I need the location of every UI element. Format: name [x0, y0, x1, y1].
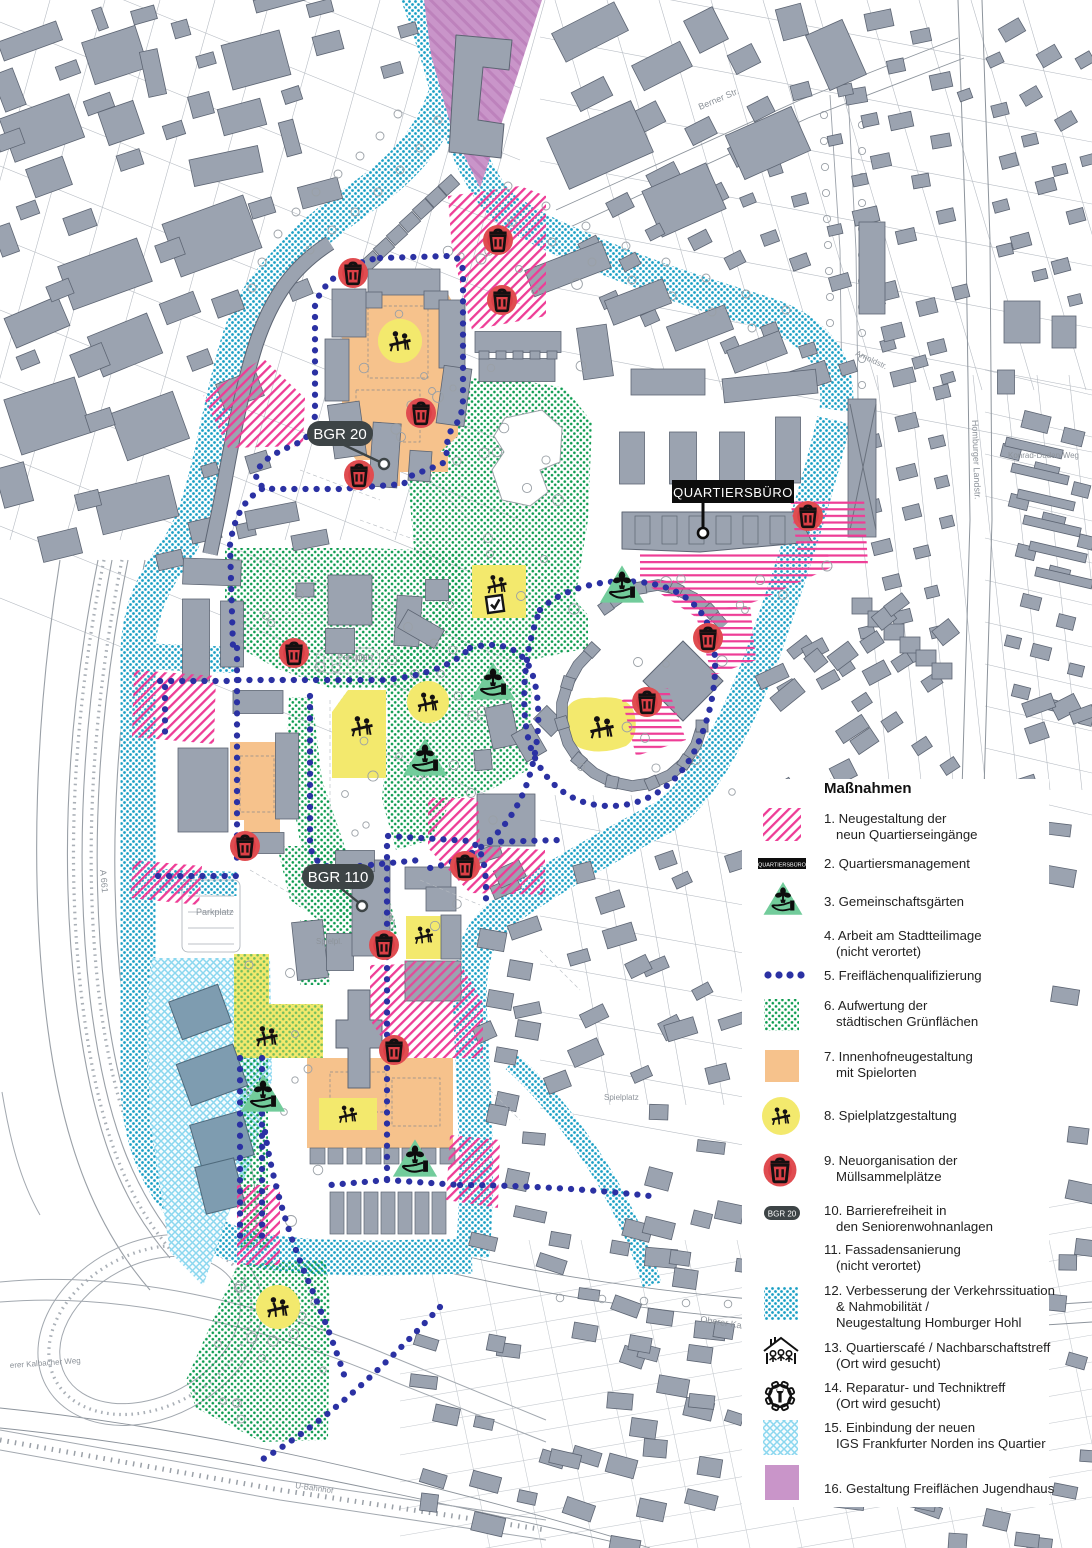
svg-text:5. Freiflächenqualifizierung: 5. Freiflächenqualifizierung: [824, 968, 982, 983]
svg-text:(nicht verortet): (nicht verortet): [836, 1258, 921, 1273]
svg-text:11. Fassadensanierung: 11. Fassadensanierung: [824, 1242, 961, 1257]
svg-text:Spielpl.: Spielpl.: [316, 937, 342, 946]
svg-text:Neugestaltung Homburger Hohl: Neugestaltung Homburger Hohl: [836, 1315, 1022, 1330]
svg-text:Spielplatz: Spielplatz: [604, 1093, 639, 1102]
svg-text:Parkplatz: Parkplatz: [337, 652, 375, 662]
svg-text:12. Verbesserung der Verkehrss: 12. Verbesserung der Verkehrssituation: [824, 1283, 1055, 1298]
svg-text:Parkplatz: Parkplatz: [196, 907, 234, 917]
svg-text:mit Spielorten: mit Spielorten: [836, 1065, 917, 1080]
svg-text:den Seniorenwohnanlagen: den Seniorenwohnanlagen: [836, 1219, 993, 1234]
svg-text:QUARTIERSBÜRO: QUARTIERSBÜRO: [673, 485, 793, 500]
svg-text:7. Innenhofneugestaltung: 7. Innenhofneugestaltung: [824, 1049, 973, 1064]
svg-text:neun Quartierseingänge: neun Quartierseingänge: [836, 827, 978, 842]
svg-text:IGS Frankfurter Norden ins Qua: IGS Frankfurter Norden ins Quartier: [836, 1436, 1046, 1451]
svg-text:BGR 20: BGR 20: [768, 1210, 797, 1219]
svg-text:BGR 20: BGR 20: [313, 426, 366, 443]
svg-text:1. Neugestaltung der: 1. Neugestaltung der: [824, 811, 947, 826]
svg-text:A 661: A 661: [98, 869, 110, 893]
svg-text:Müllsammelplätze: Müllsammelplätze: [836, 1169, 942, 1184]
svg-text:16. Gestaltung Freiflächen Jug: 16. Gestaltung Freiflächen Jugendhaus: [824, 1481, 1055, 1496]
svg-text:Maßnahmen: Maßnahmen: [824, 780, 912, 797]
svg-text:Konrad-Duden-Weg: Konrad-Duden-Weg: [1008, 451, 1079, 460]
svg-text:(nicht verortet): (nicht verortet): [836, 944, 921, 959]
svg-text:6. Aufwertung der: 6. Aufwertung der: [824, 998, 928, 1013]
svg-text:& Nahmobilität /: & Nahmobilität /: [836, 1299, 929, 1314]
svg-text:15. Einbindung der neuen: 15. Einbindung der neuen: [824, 1420, 975, 1435]
svg-text:10. Barrierefreiheit in: 10. Barrierefreiheit in: [824, 1203, 946, 1218]
svg-text:(Ort wird gesucht): (Ort wird gesucht): [836, 1396, 941, 1411]
svg-text:13. Quartierscafé / Nachbarsch: 13. Quartierscafé / Nachbarschaftstreff: [824, 1340, 1051, 1355]
svg-text:4. Arbeit am Stadtteilimage: 4. Arbeit am Stadtteilimage: [824, 928, 982, 943]
svg-text:9. Neuorganisation der: 9. Neuorganisation der: [824, 1153, 958, 1168]
svg-text:(Ort wird gesucht): (Ort wird gesucht): [836, 1356, 941, 1371]
svg-text:städtischen Grünflächen: städtischen Grünflächen: [836, 1014, 978, 1029]
svg-text:2. Quartiersmanagement: 2. Quartiersmanagement: [824, 856, 970, 871]
svg-text:8. Spielplatzgestaltung: 8. Spielplatzgestaltung: [824, 1108, 957, 1123]
svg-text:14. Reparatur- und Techniktref: 14. Reparatur- und Techniktreff: [824, 1380, 1006, 1395]
svg-text:QUARTIERSBÜRO: QUARTIERSBÜRO: [758, 862, 807, 869]
svg-text:BGR 110: BGR 110: [308, 869, 369, 886]
svg-text:3. Gemeinschaftsgärten: 3. Gemeinschaftsgärten: [824, 894, 964, 909]
